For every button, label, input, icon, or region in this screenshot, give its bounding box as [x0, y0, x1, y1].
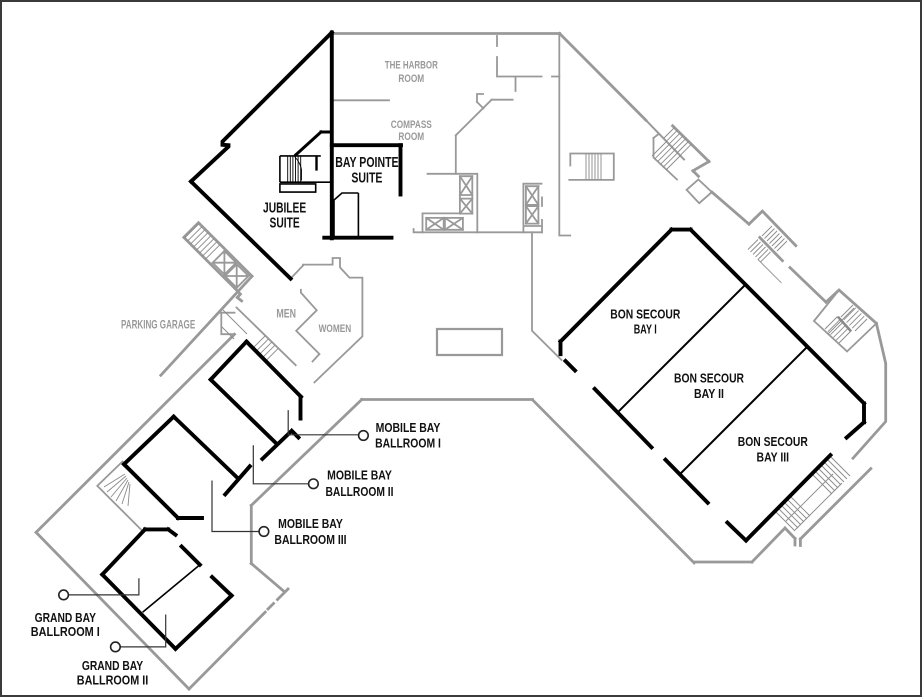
- svg-text:MOBILE BAY: MOBILE BAY: [376, 420, 441, 435]
- svg-text:BALLROOM III: BALLROOM III: [274, 532, 346, 547]
- svg-text:BALLROOM I: BALLROOM I: [375, 435, 441, 450]
- svg-text:BALLROOM II: BALLROOM II: [326, 484, 394, 499]
- svg-text:GRAND BAY: GRAND BAY: [35, 610, 97, 625]
- svg-text:THE HARBOR: THE HARBOR: [385, 60, 438, 72]
- svg-text:GRAND BAY: GRAND BAY: [82, 658, 144, 673]
- svg-text:ROOM: ROOM: [398, 73, 424, 85]
- svg-text:BALLROOM II: BALLROOM II: [77, 672, 148, 687]
- svg-text:SUITE: SUITE: [270, 214, 300, 231]
- svg-text:MOBILE BAY: MOBILE BAY: [327, 468, 392, 483]
- svg-text:BON SECOUR: BON SECOUR: [674, 370, 744, 385]
- svg-text:BAY I: BAY I: [634, 321, 657, 336]
- svg-text:BALLROOM I: BALLROOM I: [31, 624, 100, 639]
- svg-text:BON SECOUR: BON SECOUR: [610, 306, 680, 321]
- svg-text:ROOM: ROOM: [398, 131, 424, 143]
- svg-text:PARKING GARAGE: PARKING GARAGE: [121, 320, 195, 332]
- svg-text:SUITE: SUITE: [351, 169, 382, 186]
- svg-text:COMPASS: COMPASS: [391, 119, 432, 131]
- svg-text:WOMEN: WOMEN: [319, 323, 352, 335]
- svg-text:BAY III: BAY III: [757, 450, 790, 465]
- svg-text:MOBILE BAY: MOBILE BAY: [278, 516, 343, 531]
- svg-text:BON SECOUR: BON SECOUR: [738, 434, 808, 449]
- svg-text:BAY II: BAY II: [694, 386, 724, 401]
- svg-text:MEN: MEN: [276, 308, 296, 320]
